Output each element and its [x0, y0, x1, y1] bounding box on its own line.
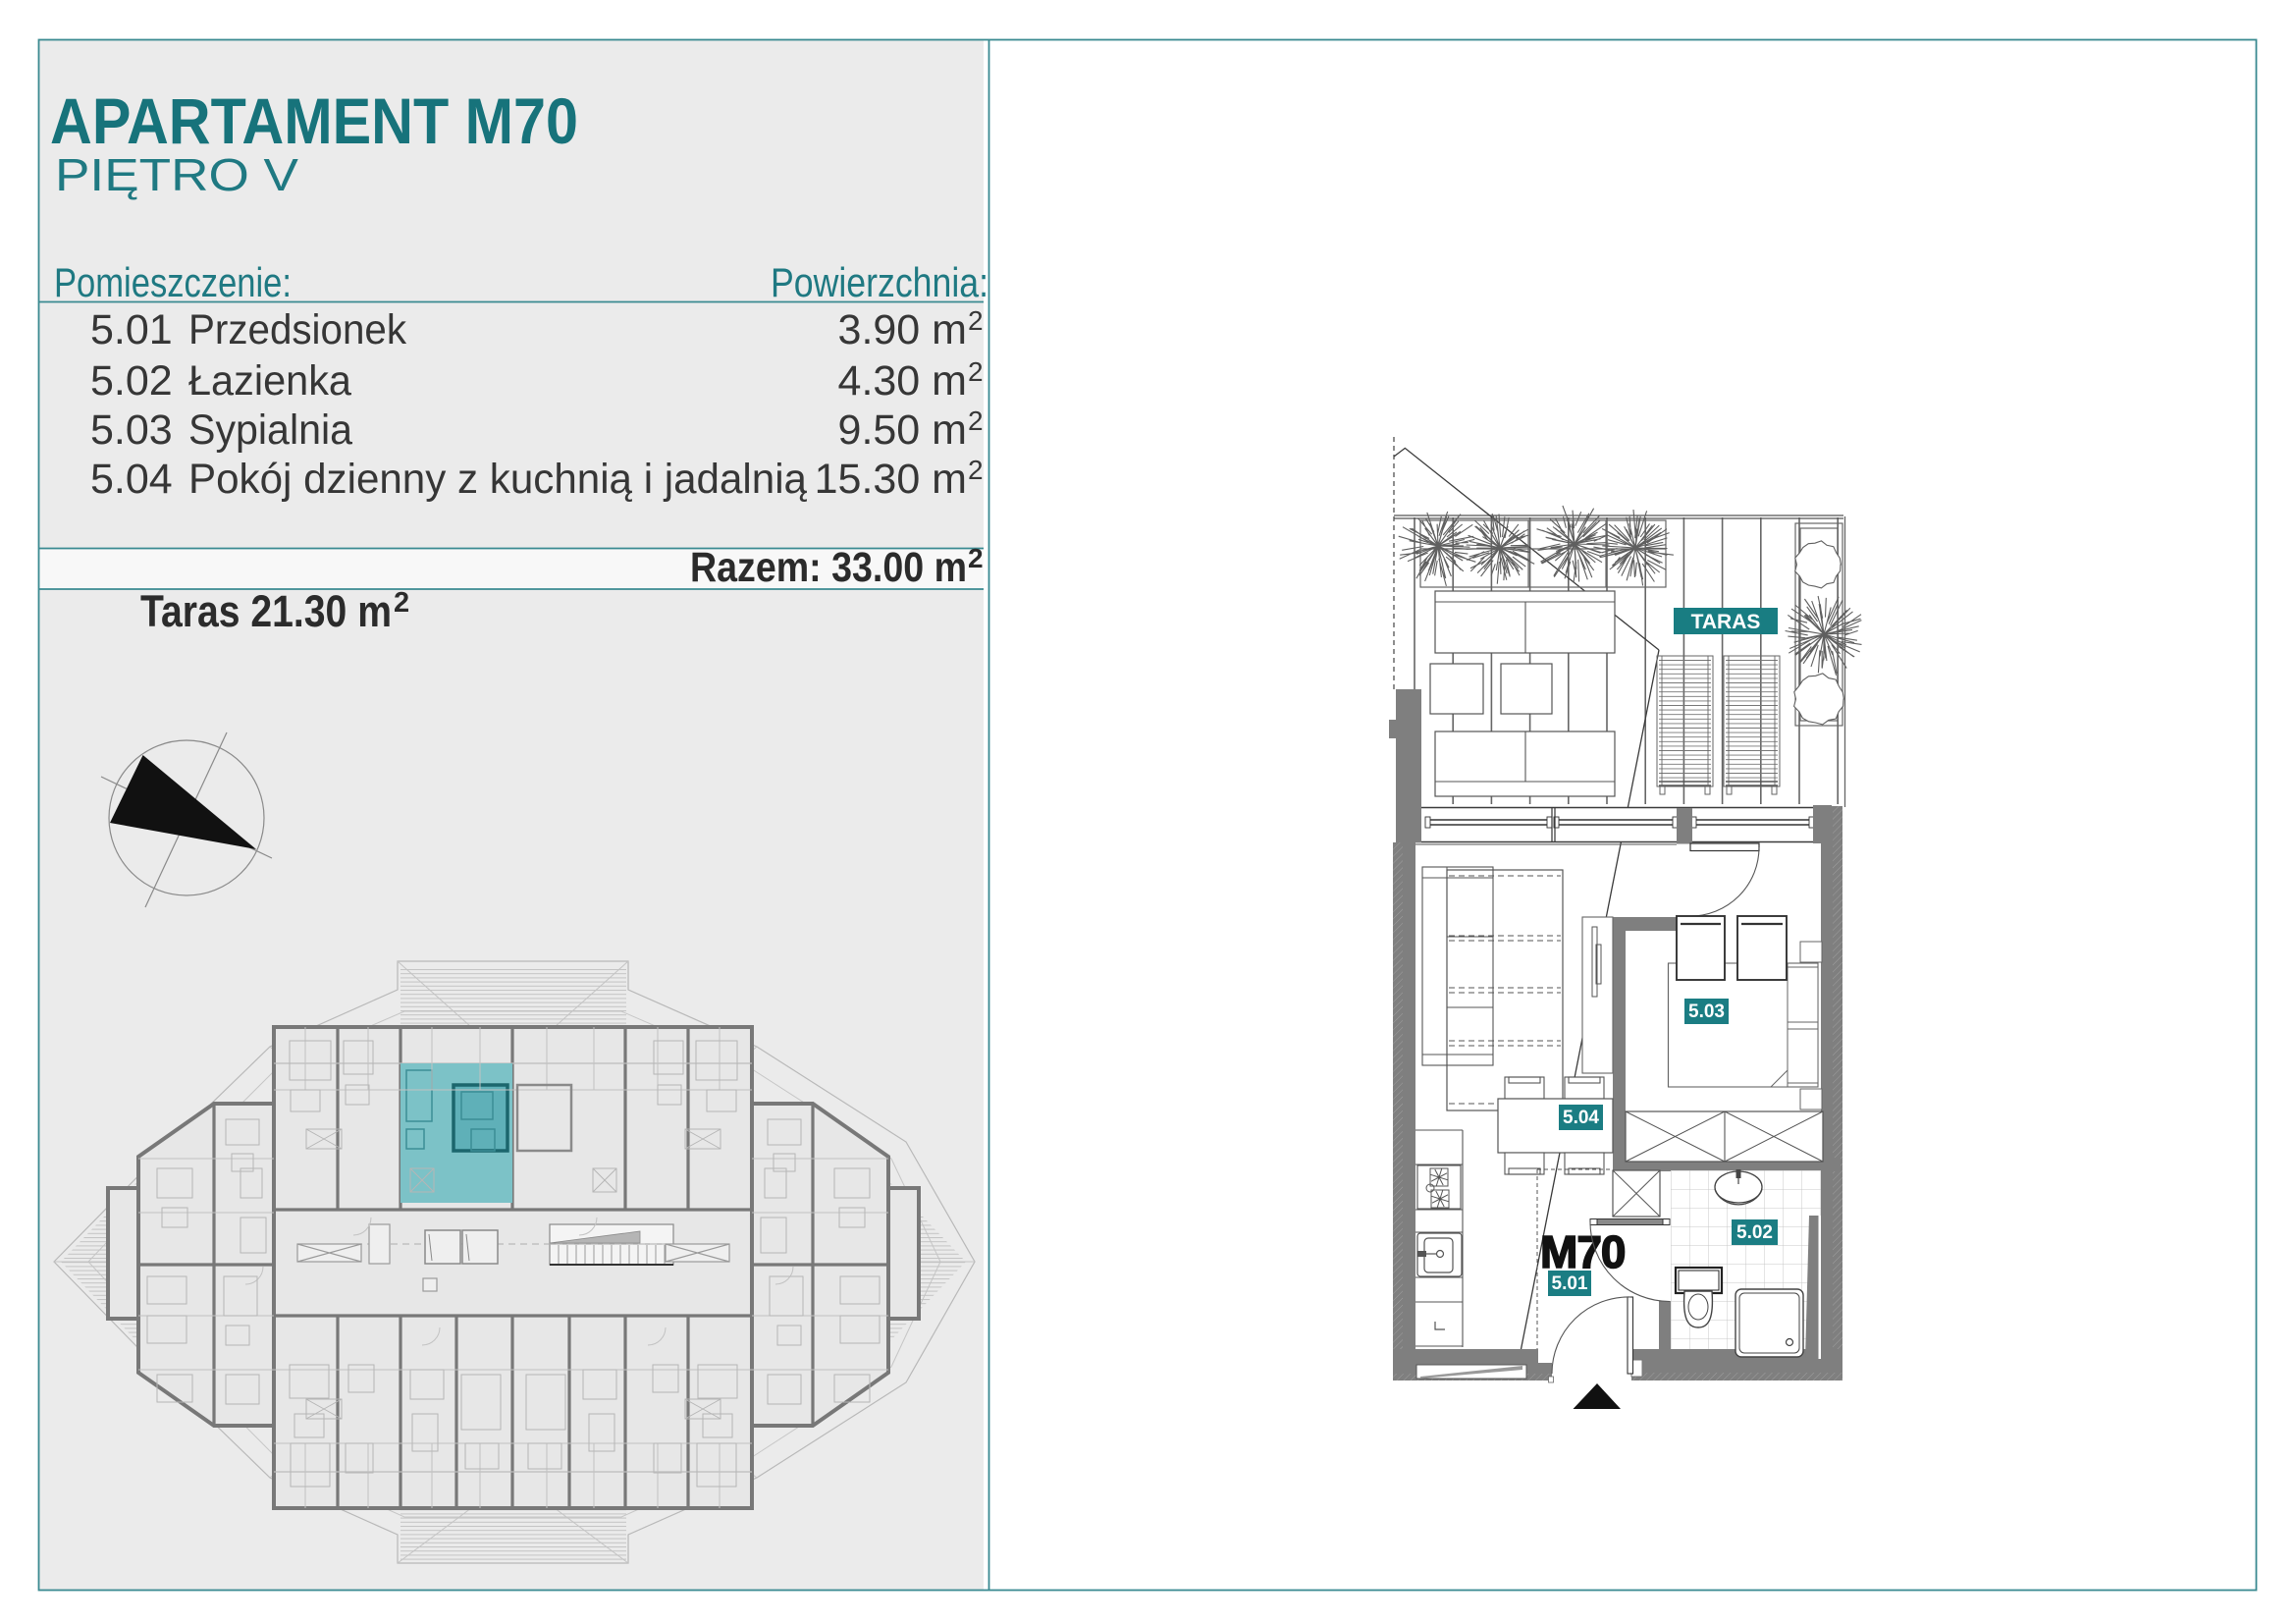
svg-text:2: 2	[968, 406, 984, 436]
svg-text:Taras 21.30 m: Taras 21.30 m	[140, 586, 392, 636]
svg-text:5.01: 5.01	[90, 306, 173, 353]
svg-text:Razem: 33.00 m: Razem: 33.00 m	[690, 544, 967, 591]
svg-text:TARAS: TARAS	[1691, 611, 1761, 633]
svg-text:2: 2	[968, 455, 984, 485]
svg-text:5.02: 5.02	[90, 357, 173, 405]
svg-text:5.02: 5.02	[1736, 1222, 1773, 1243]
svg-text:5.03: 5.03	[1688, 1001, 1725, 1022]
svg-text:5.01: 5.01	[1552, 1273, 1588, 1294]
svg-text:5.03: 5.03	[90, 406, 173, 454]
svg-text:9.50 m: 9.50 m	[838, 406, 967, 454]
svg-text:Pomieszczenie:: Pomieszczenie:	[54, 259, 292, 305]
svg-text:2: 2	[968, 305, 984, 336]
svg-text:PIĘTRO V: PIĘTRO V	[55, 149, 298, 200]
svg-text:Powierzchnia:: Powierzchnia:	[771, 259, 988, 305]
svg-text:2: 2	[394, 587, 409, 619]
svg-text:4.30 m: 4.30 m	[838, 357, 967, 405]
svg-text:3.90 m: 3.90 m	[838, 306, 967, 353]
svg-text:M70: M70	[1540, 1226, 1625, 1277]
svg-text:15.30 m: 15.30 m	[815, 456, 967, 503]
svg-text:5.04: 5.04	[90, 456, 173, 503]
svg-text:Sypialnia: Sypialnia	[188, 406, 352, 454]
svg-text:Pokój dzienny z kuchnią i jada: Pokój dzienny z kuchnią i jadalnią	[188, 456, 807, 503]
svg-text:2: 2	[968, 543, 984, 573]
svg-text:APARTAMENT M70: APARTAMENT M70	[50, 84, 578, 157]
svg-text:Przedsionek: Przedsionek	[188, 306, 406, 353]
svg-text:2: 2	[968, 356, 984, 387]
svg-text:Łazienka: Łazienka	[188, 357, 351, 405]
svg-text:5.04: 5.04	[1563, 1108, 1599, 1128]
